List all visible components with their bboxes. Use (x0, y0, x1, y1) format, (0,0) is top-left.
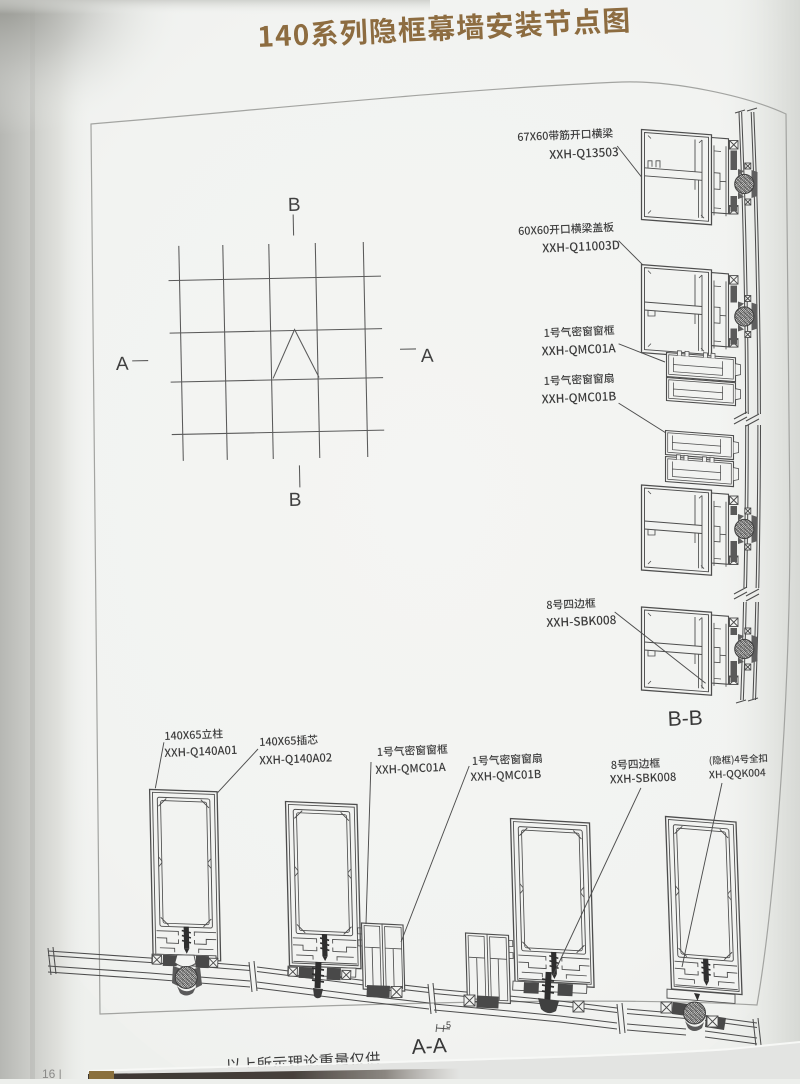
svg-text:B: B (289, 490, 302, 511)
svg-text:A-A: A-A (411, 1034, 447, 1059)
svg-text:5: 5 (446, 1020, 451, 1030)
svg-text:16 |: 16 | (42, 1067, 62, 1079)
svg-text:A: A (421, 346, 434, 367)
svg-text:B-B: B-B (667, 706, 703, 731)
svg-text:A: A (116, 354, 129, 375)
svg-text:B: B (288, 195, 301, 216)
